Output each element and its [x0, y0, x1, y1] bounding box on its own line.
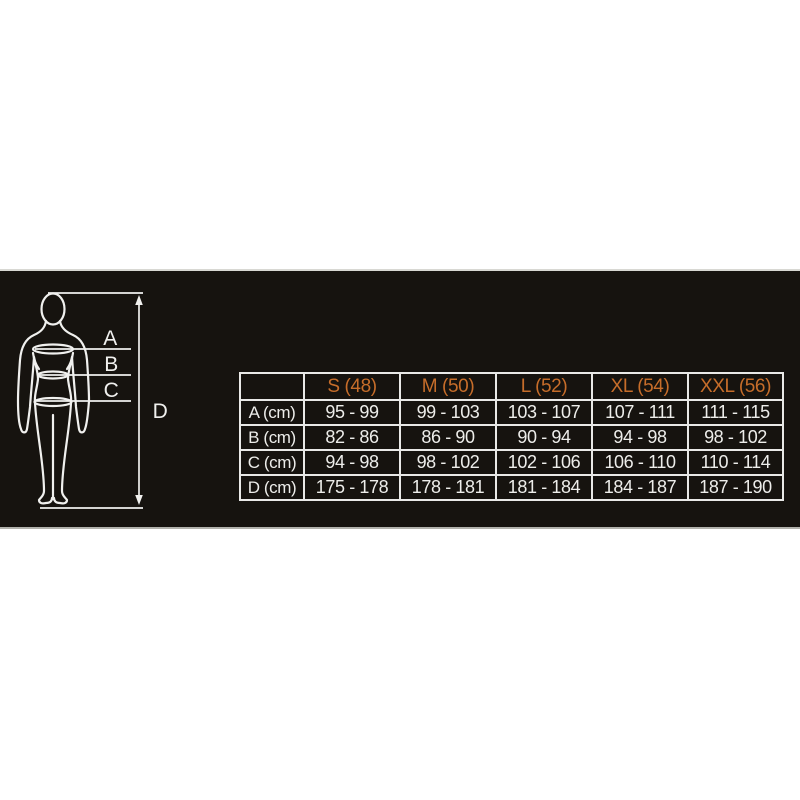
size-chart-table: S (48) M (50) L (52) XL (54) XXL (56) A … [239, 372, 784, 501]
cell-c-m: 98 - 102 [400, 450, 496, 475]
cell-b-m: 86 - 90 [400, 425, 496, 450]
col-header-m: M (50) [400, 373, 496, 400]
cell-a-l: 103 - 107 [496, 400, 592, 425]
cell-d-xl: 184 - 187 [592, 475, 688, 500]
cell-c-xxl: 110 - 114 [688, 450, 783, 475]
header-row: S (48) M (50) L (52) XL (54) XXL (56) [240, 373, 783, 400]
col-header-xl: XL (54) [592, 373, 688, 400]
label-c: C [104, 379, 119, 402]
row-label-c: C (cm) [240, 450, 304, 475]
cell-d-xxl: 187 - 190 [688, 475, 783, 500]
cell-b-xxl: 98 - 102 [688, 425, 783, 450]
cell-a-xl: 107 - 111 [592, 400, 688, 425]
label-d: D [153, 400, 168, 423]
human-figure-icon [18, 294, 89, 504]
black-banner: A B C D S (48) M (50) L (52 [0, 269, 800, 529]
cell-b-l: 90 - 94 [496, 425, 592, 450]
hip-ellipse [35, 398, 72, 406]
cell-c-s: 94 - 98 [304, 450, 400, 475]
col-header-l: L (52) [496, 373, 592, 400]
measure-labels: A B C D [103, 327, 167, 423]
cell-d-m: 178 - 181 [400, 475, 496, 500]
table-row-b: B (cm) 82 - 86 86 - 90 90 - 94 94 - 98 9… [240, 425, 783, 450]
arrow-down-icon [135, 495, 143, 505]
row-label-d: D (cm) [240, 475, 304, 500]
arrow-up-icon [135, 295, 143, 305]
table-row-a: A (cm) 95 - 99 99 - 103 103 - 107 107 - … [240, 400, 783, 425]
measurement-diagram: A B C D [0, 271, 210, 527]
row-label-a: A (cm) [240, 400, 304, 425]
table-row-c: C (cm) 94 - 98 98 - 102 102 - 106 106 - … [240, 450, 783, 475]
cell-b-xl: 94 - 98 [592, 425, 688, 450]
cell-a-xxl: 111 - 115 [688, 400, 783, 425]
figure-head [42, 294, 65, 325]
size-chart-image: A B C D S (48) M (50) L (52 [0, 0, 800, 800]
chest-contour-lines [33, 353, 73, 369]
human-figure-svg: A B C D [0, 271, 210, 527]
col-header-xxl: XXL (56) [688, 373, 783, 400]
col-header-s: S (48) [304, 373, 400, 400]
label-a: A [103, 327, 117, 350]
cell-c-xl: 106 - 110 [592, 450, 688, 475]
cell-d-s: 175 - 178 [304, 475, 400, 500]
row-label-b: B (cm) [240, 425, 304, 450]
cell-a-s: 95 - 99 [304, 400, 400, 425]
label-b: B [104, 353, 118, 376]
cell-c-l: 102 - 106 [496, 450, 592, 475]
cell-a-m: 99 - 103 [400, 400, 496, 425]
cell-d-l: 181 - 184 [496, 475, 592, 500]
size-chart-table-wrap: S (48) M (50) L (52) XL (54) XXL (56) A … [239, 372, 784, 501]
cell-b-s: 82 - 86 [304, 425, 400, 450]
corner-cell [240, 373, 304, 400]
table-row-d: D (cm) 175 - 178 178 - 181 181 - 184 184… [240, 475, 783, 500]
